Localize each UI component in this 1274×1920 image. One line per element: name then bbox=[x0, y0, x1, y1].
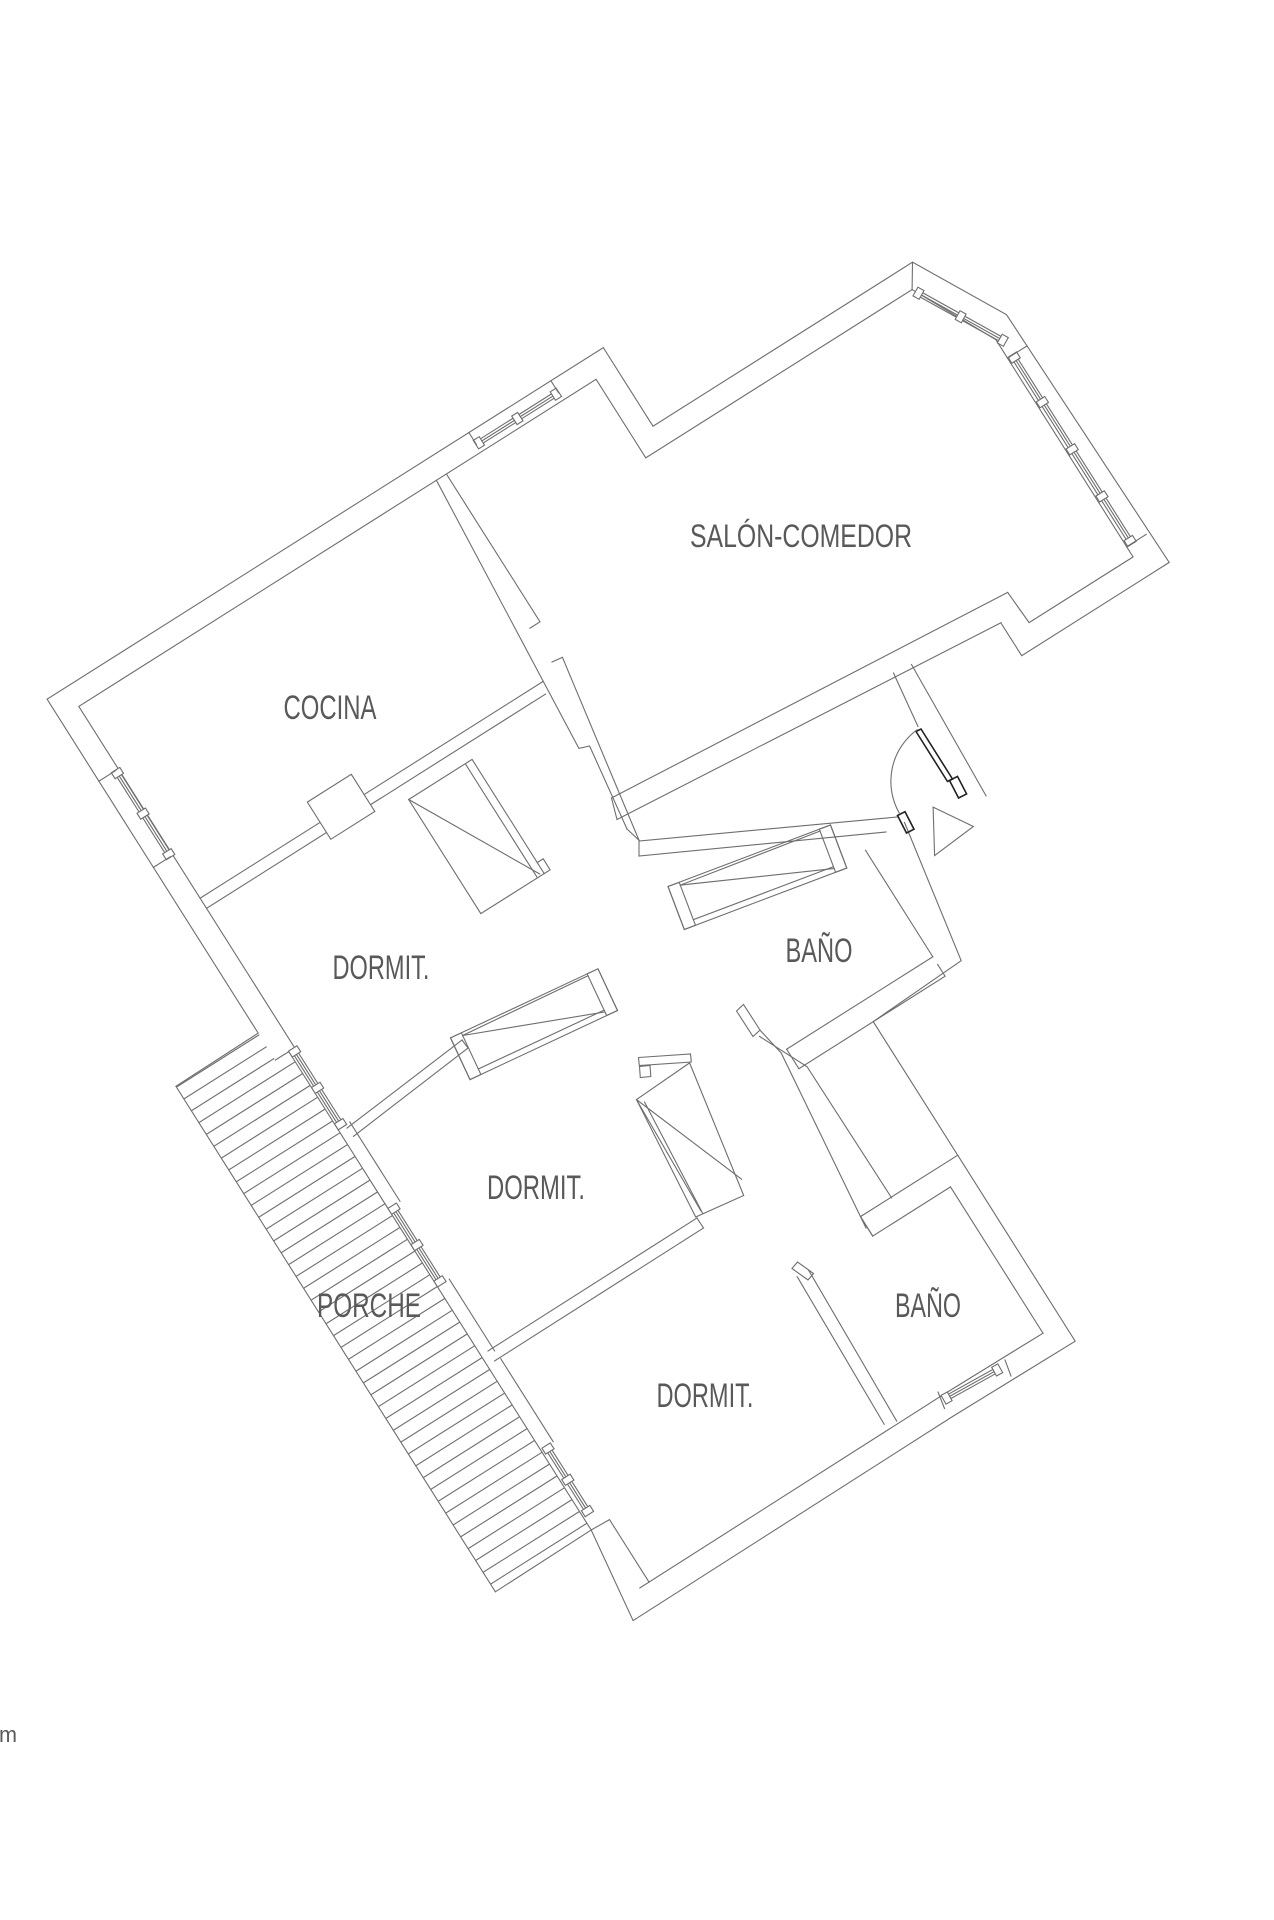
svg-text:PORCHE: PORCHE bbox=[317, 1287, 421, 1325]
svg-text:m: m bbox=[0, 1722, 17, 1747]
svg-text:BAÑO: BAÑO bbox=[895, 1287, 961, 1325]
svg-text:DORMIT.: DORMIT. bbox=[487, 1169, 585, 1207]
svg-text:DORMIT.: DORMIT. bbox=[657, 1377, 754, 1415]
svg-text:DORMIT.: DORMIT. bbox=[333, 949, 430, 987]
svg-text:BAÑO: BAÑO bbox=[786, 932, 853, 970]
svg-text:SALÓN-COMEDOR: SALÓN-COMEDOR bbox=[690, 518, 912, 554]
svg-text:COCINA: COCINA bbox=[284, 689, 377, 727]
